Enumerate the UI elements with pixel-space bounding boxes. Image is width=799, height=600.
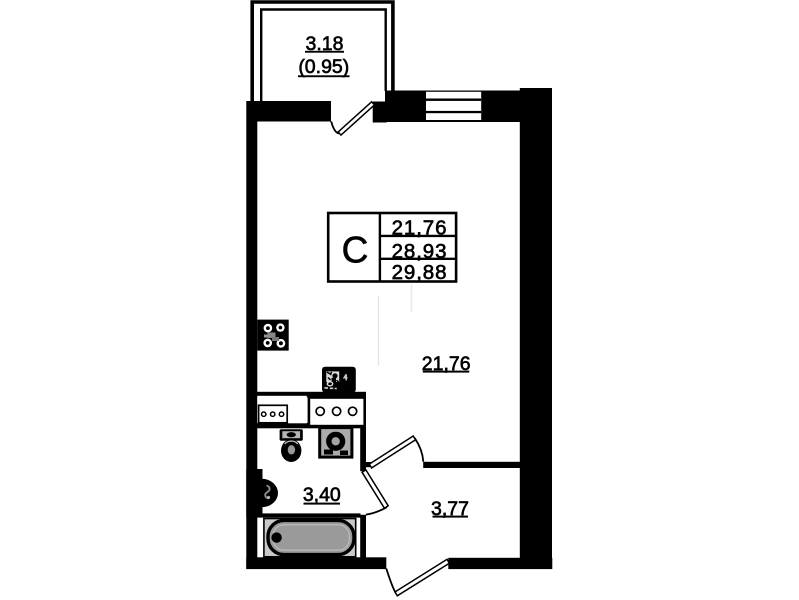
svg-text:29,88: 29,88	[392, 261, 448, 284]
svg-text:28,93: 28,93	[392, 240, 448, 263]
svg-text:С: С	[342, 230, 369, 271]
svg-text:21,76: 21,76	[392, 216, 448, 239]
svg-text:(0.95): (0.95)	[298, 56, 349, 78]
